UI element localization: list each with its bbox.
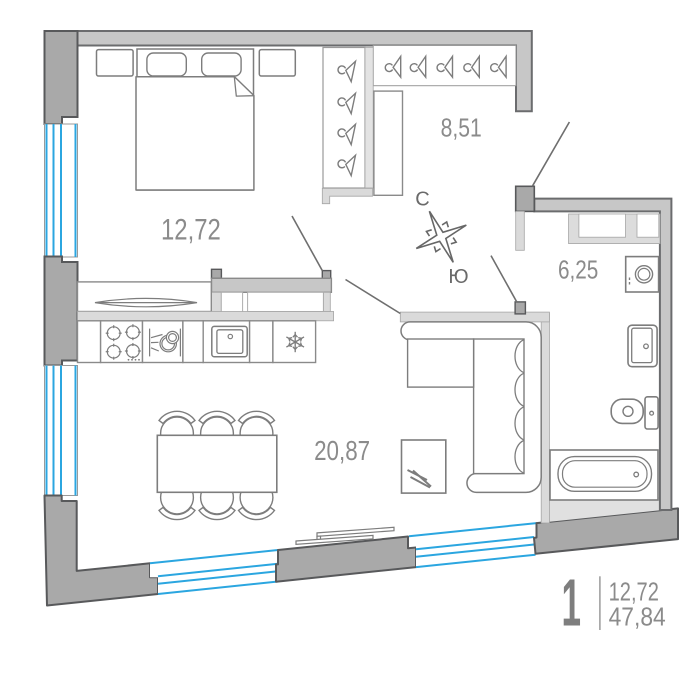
- svg-text:6,25: 6,25: [558, 254, 598, 284]
- svg-text:12,72: 12,72: [161, 214, 221, 247]
- svg-text:20,87: 20,87: [314, 435, 370, 466]
- svg-text:Ю: Ю: [448, 266, 468, 288]
- svg-text:12,72: 12,72: [609, 578, 659, 606]
- svg-text:С: С: [415, 189, 429, 211]
- svg-text:8,51: 8,51: [441, 113, 482, 143]
- svg-text:47,84: 47,84: [609, 603, 666, 631]
- svg-text:1: 1: [562, 565, 582, 640]
